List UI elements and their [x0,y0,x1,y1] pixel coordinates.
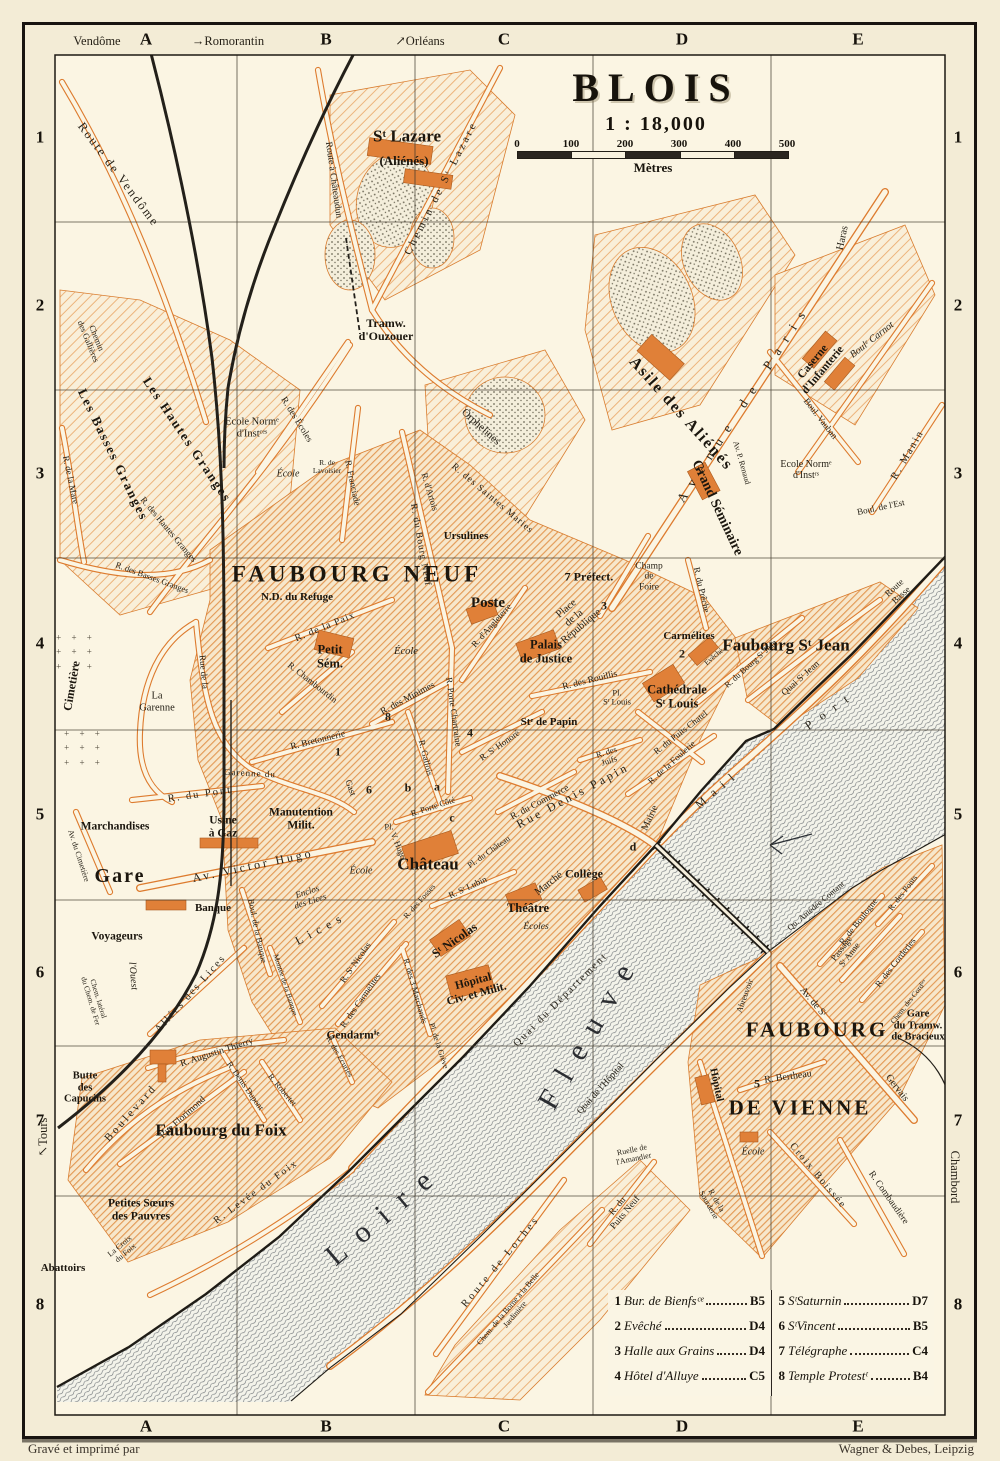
map-label: R. Robertet [266,1072,298,1108]
scale-bar-strip [517,151,789,159]
map-label: R. Porte Chartraine [443,677,462,747]
legend-leader-dots [717,1353,746,1355]
map-label: R. de la Foulerie [646,739,697,786]
map-label: Boul. de la Banque [246,898,269,964]
map-label: Gervais [883,1072,911,1103]
map-label: Asile des Aliénés [625,354,736,475]
map-label: c [449,811,454,824]
map-label: R. du Bourg Neuf [408,503,433,587]
legend-entry: 8Temple ProtestᵗB4 [776,1368,928,1393]
map-label: Chambord [947,1151,961,1204]
map-label: Pl. Sᵗ Louis [603,689,631,708]
map-label: 7 Préfect. [565,570,614,583]
map-label: Faubourg du Foix [155,1122,286,1141]
map-label: Place de la République [544,589,603,647]
legend-entry-number: 3 [612,1343,621,1359]
map-label: Av. P. Renaud [731,440,752,485]
map-label: École [742,1147,765,1158]
map-label: Quai de l'Hôpital [575,1061,626,1116]
map-label: Petites Sœurs des Pauvres [108,1197,174,1222]
legend-entry-name: Temple Protestᵗ [788,1368,868,1384]
map-label: d [630,840,637,853]
map-label: R. des Saintes Maries [449,462,535,536]
scale-bar-ticks: 0100200300400500 [517,138,789,151]
legend-entry: 2EvêchéD4 [612,1318,765,1343]
map-label: Petit Sém. [317,643,343,671]
map-label: FAUBOURG NEUF [232,561,482,586]
map-label: R. Sᵗ Nicolas [338,941,373,985]
map-label: R. du Puits Neuf [601,1188,643,1232]
map-label: (Aliénés) [379,154,428,168]
map-label: Poste [471,595,505,612]
map-label: R. Manin [889,428,927,482]
grid-number: 4 [36,635,45,654]
map-label: R. d'Angleterre [470,602,514,650]
legend-entry-name: Bur. de Bienfsᶜᵉ [624,1293,703,1309]
map-label: Les Basses Granges [75,387,151,524]
map-label: Route de Loches [459,1214,542,1310]
map-label: Hôpital [707,1067,725,1103]
map-label: R. des 3 Marchands [401,957,429,1024]
map-label: Avenue de Paris [674,301,814,505]
map-label: Enclos des Lices [290,882,328,911]
label-layer: Vendôme→Romorantin↗Orléans↖ToursChambord… [0,0,1000,1461]
map-label: La Croix du Foix [106,1234,139,1266]
map-label: Garenne du [224,768,276,781]
map-label: Quai Sᵗ Jean [780,659,822,698]
map-label: Pl. du Château [466,834,512,870]
map-label: R. Augustin Thierry [179,1036,255,1069]
map-label: 5 [754,1077,760,1090]
map-label: ↗Orléans [395,35,444,49]
map-label: Abreuvoir [735,978,756,1014]
scale-bar-unit: Mètres [517,160,789,176]
map-label: 3 [601,599,607,612]
map-label: R. Combaudière [866,1170,910,1227]
map-label: R. d'Artois [419,472,440,512]
map-label: R. de la Paix [293,610,357,644]
map-label: Gendarmⁱᵉ [326,1030,379,1043]
engraver-credit: Gravé et imprimé par [28,1441,140,1457]
legend-leader-dots [702,1378,746,1380]
map-label: Butte des Capucins [64,1071,106,1106]
legend-leader-dots [838,1328,909,1330]
map-label: →Romorantin [192,35,264,49]
scale-segment [518,152,571,158]
grid-letter: E [852,1418,863,1437]
grid-number: 6 [954,964,963,983]
legend-leader-dots [850,1353,909,1355]
legend-entry-gridref: B5 [913,1318,928,1334]
map-label: Théâtre [507,902,549,916]
grid-letter: E [852,31,863,50]
map-label: Pl. [384,822,393,831]
grid-number: 2 [36,297,45,316]
legend-entry-number: 2 [612,1318,621,1334]
legend-column-1: 1Bur. de BienfsᶜᵉB52EvêchéD43Halle aux G… [608,1290,771,1396]
map-label: R. Chambourdin [285,661,338,706]
map-label: Av. Victor Hugo [191,847,314,886]
scale-bar: 0100200300400500 Mètres [517,138,789,176]
map-label: R. Gallois [416,739,434,777]
grid-letter: D [676,1418,688,1437]
legend: 1Bur. de BienfsᶜᵉB52EvêchéD43Halle aux G… [608,1290,934,1396]
map-label: Usine à Gaz [209,814,237,839]
map-label: ↖Tours [37,1118,51,1157]
legend-column-2: 5SᵗSaturninD76SᵗVincentB57TélégrapheC48T… [771,1290,934,1396]
map-label: Hôpital Civ. et Milit. [442,968,508,1008]
map-label: Pl. de la Grève [426,1022,449,1070]
legend-entry: 1Bur. de BienfsᶜᵉB5 [612,1293,765,1318]
map-label: Allées des Lices [153,953,229,1036]
legend-entry-gridref: D4 [749,1343,765,1359]
map-label: Port [803,687,860,732]
map-label: École [350,866,373,877]
grid-number: 7 [36,1112,45,1131]
map-label: Av. du Cimetière [65,829,90,883]
legend-leader-dots [844,1303,909,1305]
map-label: R. des Basses Granges [114,560,190,595]
map-label: Fleuve [531,945,648,1115]
map-label: Les Hautes Granges [140,375,235,506]
grid-number: 8 [954,1296,963,1315]
map-label: Gare du Tramw. de Bracieux [891,1009,944,1044]
legend-entry-gridref: B4 [913,1368,928,1384]
map-label: R. du Commerce [509,783,571,823]
legend-entry-gridref: B5 [750,1293,765,1309]
map-label: Boulevard [102,1082,160,1144]
map-label: Caserne d'Infanterie [789,335,846,396]
map-label: Route de Vendôme [74,120,161,230]
map-label: R. Levée du Foix [212,1158,301,1227]
map-label: Rue Denis Papin [514,761,631,832]
map-label: Marché [533,870,565,899]
map-label: Chemin de Sᵗ Lazare [402,119,480,257]
legend-entry-gridref: C5 [749,1368,765,1384]
map-label: 2 [679,647,685,660]
legend-entry-name: Halle aux Grains [624,1343,714,1359]
map-label: Faubourg Sᵗ Jean [722,637,849,656]
map-label: Grand Séminaire [688,458,746,558]
map-label: Stᵉ de Papin [521,716,578,728]
map-label: R. de Boulogne [838,897,880,947]
map-label: Palais de Justice [520,638,572,666]
map-label: R. des Écoles [278,395,314,444]
map-label: Mairie [639,804,660,833]
map-label: R. des Fosses [402,883,438,921]
title-block: BLOIS 1 : 18,000 [500,64,812,136]
legend-entry-number: 6 [776,1318,785,1334]
map-label: Sᵗ Lazare [373,128,441,147]
grid-letter: B [320,1418,331,1437]
legend-entry-name: Evêché [624,1318,662,1334]
grid-letter: B [320,31,331,50]
map-label: + + + + + + + + + [56,630,96,673]
map-label: R. Sᵗ Lubin [447,875,488,901]
map-label: Orphelines [459,406,503,447]
grid-number: 1 [954,129,963,148]
legend-entry-name: SᵗVincent [788,1318,835,1334]
map-label: R. des Minimes [379,680,437,717]
scale-tick: 500 [779,138,796,150]
map-label: FAUBOURG [746,1018,889,1041]
map-label: R. Denis Dupont [225,1060,266,1112]
map-label: Passage Sᵗ Anne [829,935,862,970]
map-label: R. des Écuries [324,1035,355,1079]
map-label: DE VIENNE [729,1096,872,1119]
map-label: b [405,781,412,794]
map-page: Vendôme→Romorantin↗Orléans↖ToursChambord… [0,0,1000,1461]
legend-leader-dots [871,1378,910,1380]
map-label: R. de Lavoisier [313,459,341,476]
scale-segment [625,152,679,158]
scale-tick: 200 [617,138,634,150]
map-label: l'Ouest [126,961,139,990]
map-label: Route à Châteaudun [322,141,343,219]
map-label: V. Hugo [388,831,407,861]
map-label: R. des Hautes Granges [138,495,198,564]
grid-number: 4 [954,635,963,654]
map-label: Qu. Amédée Contant [786,879,847,932]
map-label: Gare [95,865,146,887]
map-label: Rue de la [197,655,210,690]
legend-entry-number: 1 [612,1293,621,1309]
grid-letter: C [498,1418,510,1437]
grid-number: 5 [36,806,45,825]
map-label: Lices [293,910,349,948]
map-label: Manutention Milit. [269,806,333,831]
legend-entry-number: 7 [776,1343,785,1359]
map-label: Tramw. d'Ouzouer [359,317,414,343]
map-label: Voyageurs [91,931,142,944]
map-label: R. des Rouillis [561,669,618,693]
map-label: R. des Carmélites [339,972,384,1030]
map-label: Boul. de l'Est [856,498,905,518]
map-label: R. de la Mare [60,455,80,505]
legend-entry: 6SᵗVincentB5 [776,1318,928,1343]
publisher-credit: Wagner & Debes, Leipzig [839,1441,974,1457]
map-label: R. du Prêche [691,566,711,613]
map-label: Château [397,856,458,875]
map-label: Quai du Département [512,951,611,1050]
grid-number: 2 [954,297,963,316]
map-label: R. des Ponts [886,873,919,912]
scale-tick: 400 [725,138,742,150]
map-label: Montée de la Banque [271,953,299,1016]
legend-leader-dots [665,1328,747,1330]
map-label: R. Franciade [342,459,361,506]
map-label: Cathédrale Sᵗ Louis [647,683,707,711]
grid-letter: D [676,31,688,50]
map-label: Collège [565,867,603,880]
map-label: Haras [835,225,851,251]
map-label: 6 [366,783,372,796]
scale-segment [734,152,788,158]
grid-letter: C [498,31,510,50]
legend-leader-dots [706,1303,746,1305]
scale-segment [571,152,625,158]
map-label: Av. de Sᵗ [797,985,828,1019]
map-label: Ecole Normᵉ d'Instᶜᵉˢ [225,416,279,439]
map-label: R. des Corderies [874,936,919,989]
map-label: École [394,646,418,658]
map-label: 1 [335,745,341,758]
map-label: Chem. latéral du Chem. de Fer [79,974,109,1027]
map-label: R. de la Sourderie [697,1185,728,1221]
map-label: R. Bretonnerie [290,729,347,753]
map-label: Champ de Foire [635,561,662,592]
map-label: Gast [343,779,358,798]
legend-entry-gridref: D4 [749,1318,765,1334]
map-label: Cimetière [61,660,83,712]
grid-number: 1 [36,129,45,148]
map-label: Loire [319,1154,451,1272]
map-label: Vendôme [73,35,120,49]
legend-entry-name: Télégraphe [788,1343,847,1359]
legend-entry-number: 4 [612,1368,621,1384]
map-label: Mail [693,766,743,811]
map-label: Evêché [703,647,725,668]
map-label: R. du Bourg Sᵗ Jean [723,638,779,690]
map-label: Ecole Normᵉ d'Instʳˢ [780,459,831,481]
map-label: Marchandises [81,821,150,834]
map-label: Écoles [523,922,548,932]
map-label: R. du Pont [167,785,233,805]
map-label: Carmélites [663,630,714,642]
legend-entry-number: 5 [776,1293,785,1309]
map-label: R. des Juifs [595,745,621,769]
map-label: Abattoirs [41,1262,86,1274]
map-label: La Garenne [139,690,175,713]
map-label: Rue Florimond [158,1095,208,1141]
map-label: R. Sᵗ Honoré [478,729,522,764]
map-label: R. Bertheau [764,1068,813,1086]
map-label: N.D. du Refuge [261,591,333,603]
grid-number: 3 [36,465,45,484]
scale-segment [680,152,734,158]
legend-entry: 5SᵗSaturninD7 [776,1293,928,1318]
map-label: Sᵗ Nicolas [430,921,480,962]
grid-number: 6 [36,964,45,983]
grid-letter: A [140,31,152,50]
legend-entry-number: 8 [776,1368,785,1384]
grid-number: 7 [954,1112,963,1131]
scale-tick: 0 [514,138,520,150]
map-label: Boulᵉ Carnot [848,320,896,361]
grid-number: 5 [954,806,963,825]
map-label: Banque [195,902,231,914]
map-label: Chem. des Cordⁱᵉˢ [889,978,928,1025]
legend-entry-name: Hôtel d'Alluye [624,1368,699,1384]
map-label: Boul. Vauban [801,397,839,442]
map-label: 4 [467,726,473,739]
legend-entry: 3Halle aux GrainsD4 [612,1343,765,1368]
map-label: Ursulines [444,530,489,542]
map-label: Route Basse [883,577,912,606]
legend-entry-gridref: C4 [912,1343,928,1359]
map-label: 8 [385,710,391,723]
map-label: a [434,780,440,793]
map-label: Chemin des Gallières [75,316,109,364]
map-label: Croix Boissée [787,1141,848,1211]
legend-entry-gridref: D7 [912,1293,928,1309]
map-title: BLOIS [500,64,812,111]
map-label: Ruelle de l'Amandier [614,1143,653,1168]
legend-entry-name: SᵗSaturnin [788,1293,841,1309]
scale-tick: 100 [563,138,580,150]
map-label: + + + + + + + + + [64,726,104,769]
grid-number: 3 [954,465,963,484]
legend-entry: 7TélégrapheC4 [776,1343,928,1368]
map-label: Chem. de la Borne à la Belle Jardinière [476,1271,549,1353]
map-scale-ratio: 1 : 18,000 [500,113,812,136]
map-label: R. Porte Côté [410,795,457,818]
map-label: R. du Puits Chatel [652,709,710,757]
grid-letter: A [140,1418,152,1437]
scale-tick: 300 [671,138,688,150]
grid-number: 8 [36,1296,45,1315]
map-label: École [277,469,300,480]
legend-entry: 4Hôtel d'AlluyeC5 [612,1368,765,1393]
